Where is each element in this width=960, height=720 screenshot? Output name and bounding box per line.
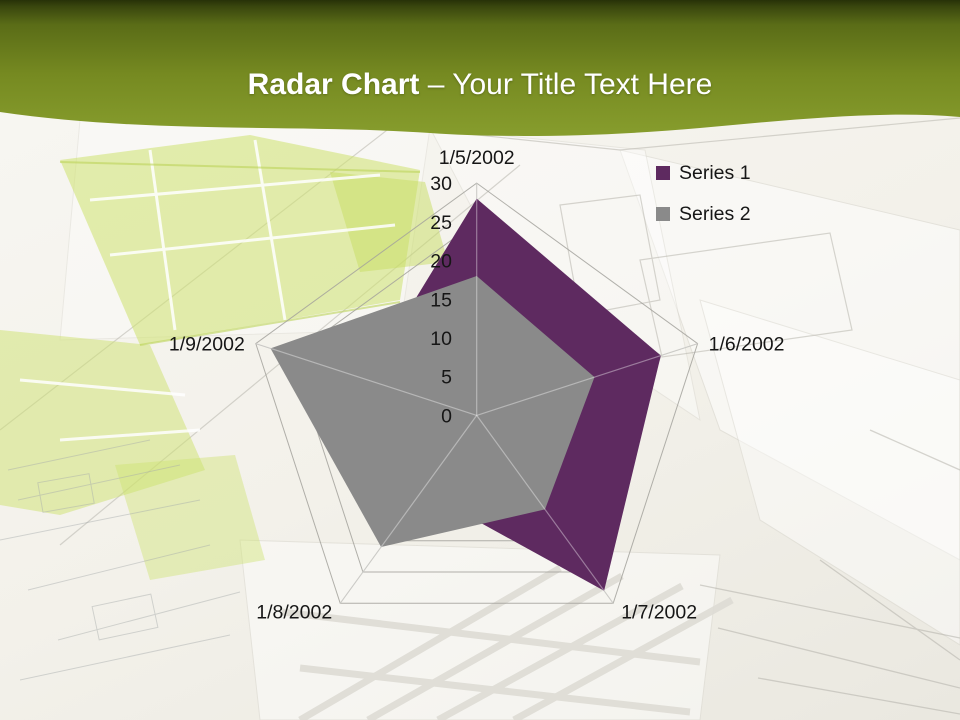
- tick-label-25: 25: [430, 212, 452, 234]
- legend-swatch-series-1: [656, 166, 670, 180]
- legend-label-series-1: Series 1: [679, 161, 751, 185]
- legend-label-series-2: Series 2: [679, 202, 751, 226]
- legend-swatch-series-2: [656, 207, 670, 221]
- slide-title-rest: – Your Title Text Here: [419, 68, 712, 101]
- slide: 0510152025301/5/20021/6/20021/7/20021/8/…: [0, 0, 960, 720]
- chart-legend: Series 1 Series 2: [656, 161, 751, 243]
- category-label-3: 1/8/2002: [256, 601, 332, 623]
- category-label-2: 1/7/2002: [621, 601, 697, 623]
- slide-title: Radar Chart – Your Title Text Here: [0, 69, 960, 101]
- tick-label-15: 15: [430, 289, 452, 311]
- tick-label-30: 30: [430, 173, 452, 195]
- category-label-0: 1/5/2002: [439, 147, 515, 169]
- tick-label-10: 10: [430, 328, 452, 350]
- tick-label-5: 5: [441, 367, 452, 389]
- legend-item-series-1: Series 1: [656, 161, 751, 185]
- radar-chart: 0510152025301/5/20021/6/20021/7/20021/8/…: [0, 0, 960, 720]
- category-label-4: 1/9/2002: [169, 334, 245, 356]
- slide-title-bold: Radar Chart: [248, 68, 420, 101]
- category-label-1: 1/6/2002: [709, 334, 785, 356]
- tick-label-20: 20: [430, 251, 452, 273]
- legend-item-series-2: Series 2: [656, 202, 751, 226]
- tick-label-0: 0: [441, 405, 452, 427]
